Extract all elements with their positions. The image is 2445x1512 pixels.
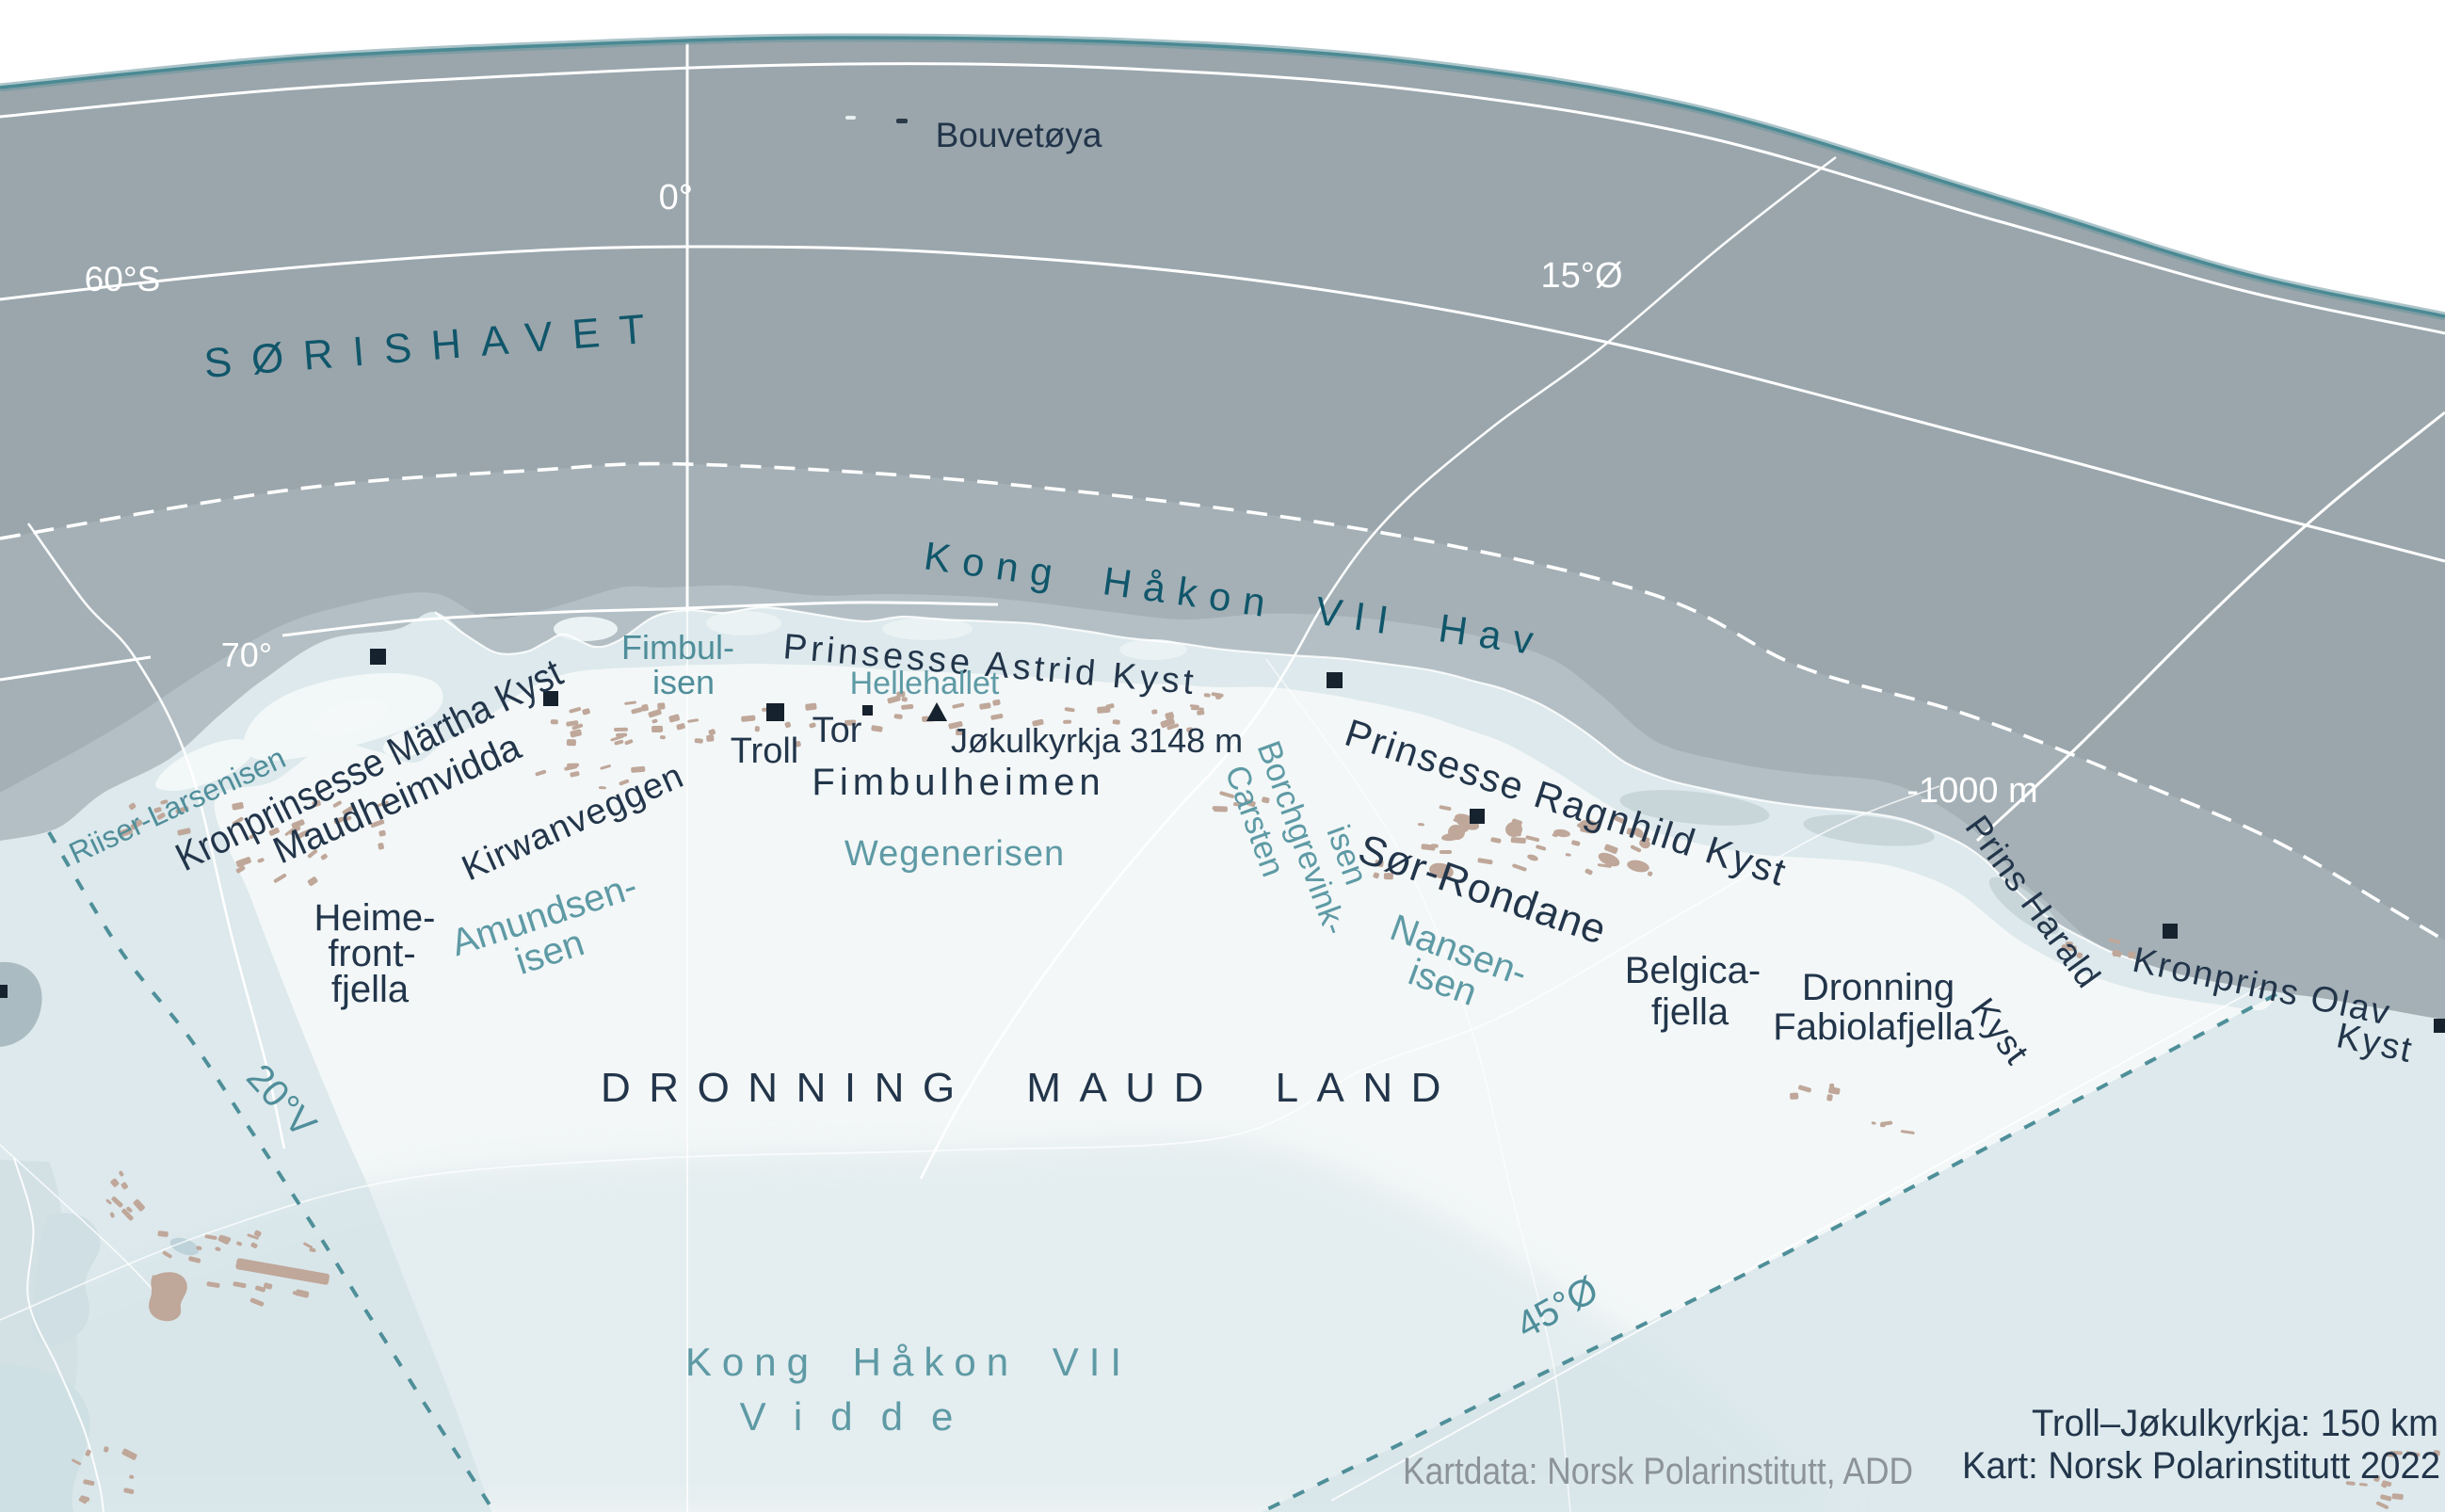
svg-text:-1000 m: -1000 m	[1906, 771, 2037, 811]
svg-text:Belgica-: Belgica-	[1625, 950, 1761, 991]
svg-text:Wegenerisen: Wegenerisen	[844, 834, 1065, 874]
svg-text:Hellehallet: Hellehallet	[850, 666, 1000, 701]
svg-text:Vidde: Vidde	[740, 1394, 982, 1439]
svg-text:Fabiolafjella: Fabiolafjella	[1773, 1006, 1974, 1048]
svg-text:Fimbulheimen: Fimbulheimen	[812, 762, 1104, 803]
svg-text:Kartdata: Norsk Polarinstitutt: Kartdata: Norsk Polarinstitutt, ADD	[1403, 1451, 1913, 1492]
svg-text:0°: 0°	[659, 178, 693, 217]
svg-text:Jøkulkyrkja 3148 m: Jøkulkyrkja 3148 m	[951, 721, 1243, 760]
svg-text:Bouvetøya: Bouvetøya	[936, 116, 1102, 154]
svg-text:Troll–Jøkulkyrkja: 150 km: Troll–Jøkulkyrkja: 150 km	[2032, 1403, 2438, 1444]
svg-text:15°Ø: 15°Ø	[1540, 256, 1622, 296]
svg-text:Kart: Norsk Polarinstitutt 202: Kart: Norsk Polarinstitutt 2022	[1962, 1445, 2440, 1487]
svg-text:fjella: fjella	[1651, 991, 1729, 1033]
svg-text:70°: 70°	[221, 635, 272, 674]
svg-text:Dronning: Dronning	[1802, 967, 1954, 1008]
svg-text:DRONNING MAUD LAND: DRONNING MAUD LAND	[601, 1065, 1459, 1111]
svg-text:60°S: 60°S	[85, 260, 161, 298]
svg-text:isen: isen	[652, 663, 715, 701]
svg-text:Tor: Tor	[812, 711, 862, 750]
svg-text:Fimbul-: Fimbul-	[621, 628, 734, 667]
svg-text:fjella: fjella	[331, 969, 410, 1010]
svg-text:Kong Håkon VII: Kong Håkon VII	[685, 1340, 1132, 1384]
svg-text:Troll: Troll	[731, 732, 798, 771]
